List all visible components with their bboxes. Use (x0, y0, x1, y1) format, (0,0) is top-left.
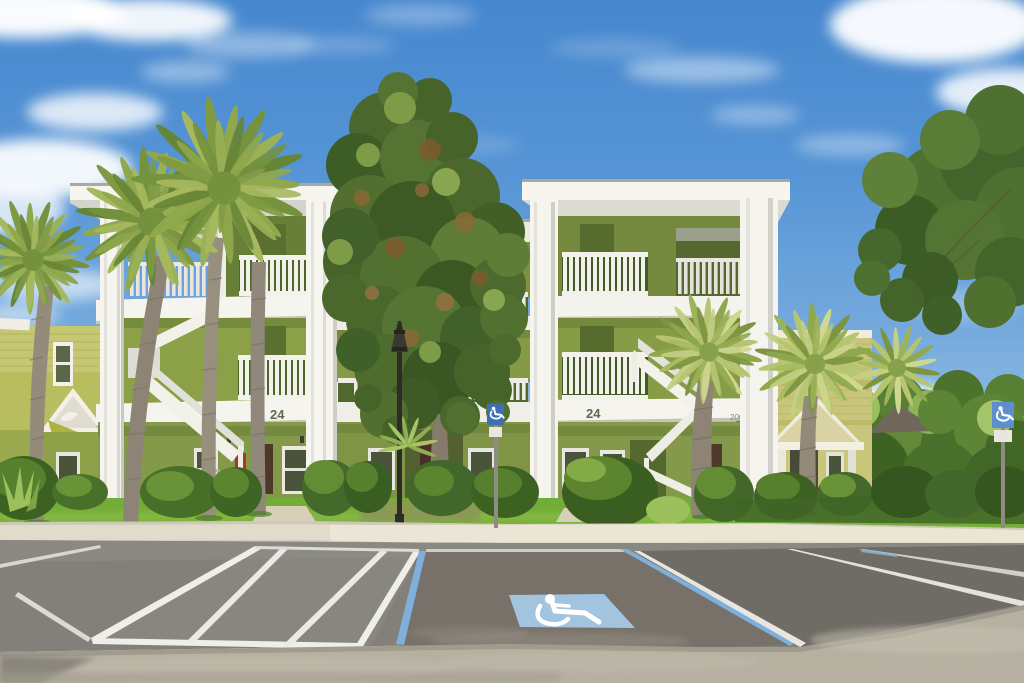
svg-text:24: 24 (270, 407, 285, 422)
svg-text:24: 24 (586, 406, 601, 421)
